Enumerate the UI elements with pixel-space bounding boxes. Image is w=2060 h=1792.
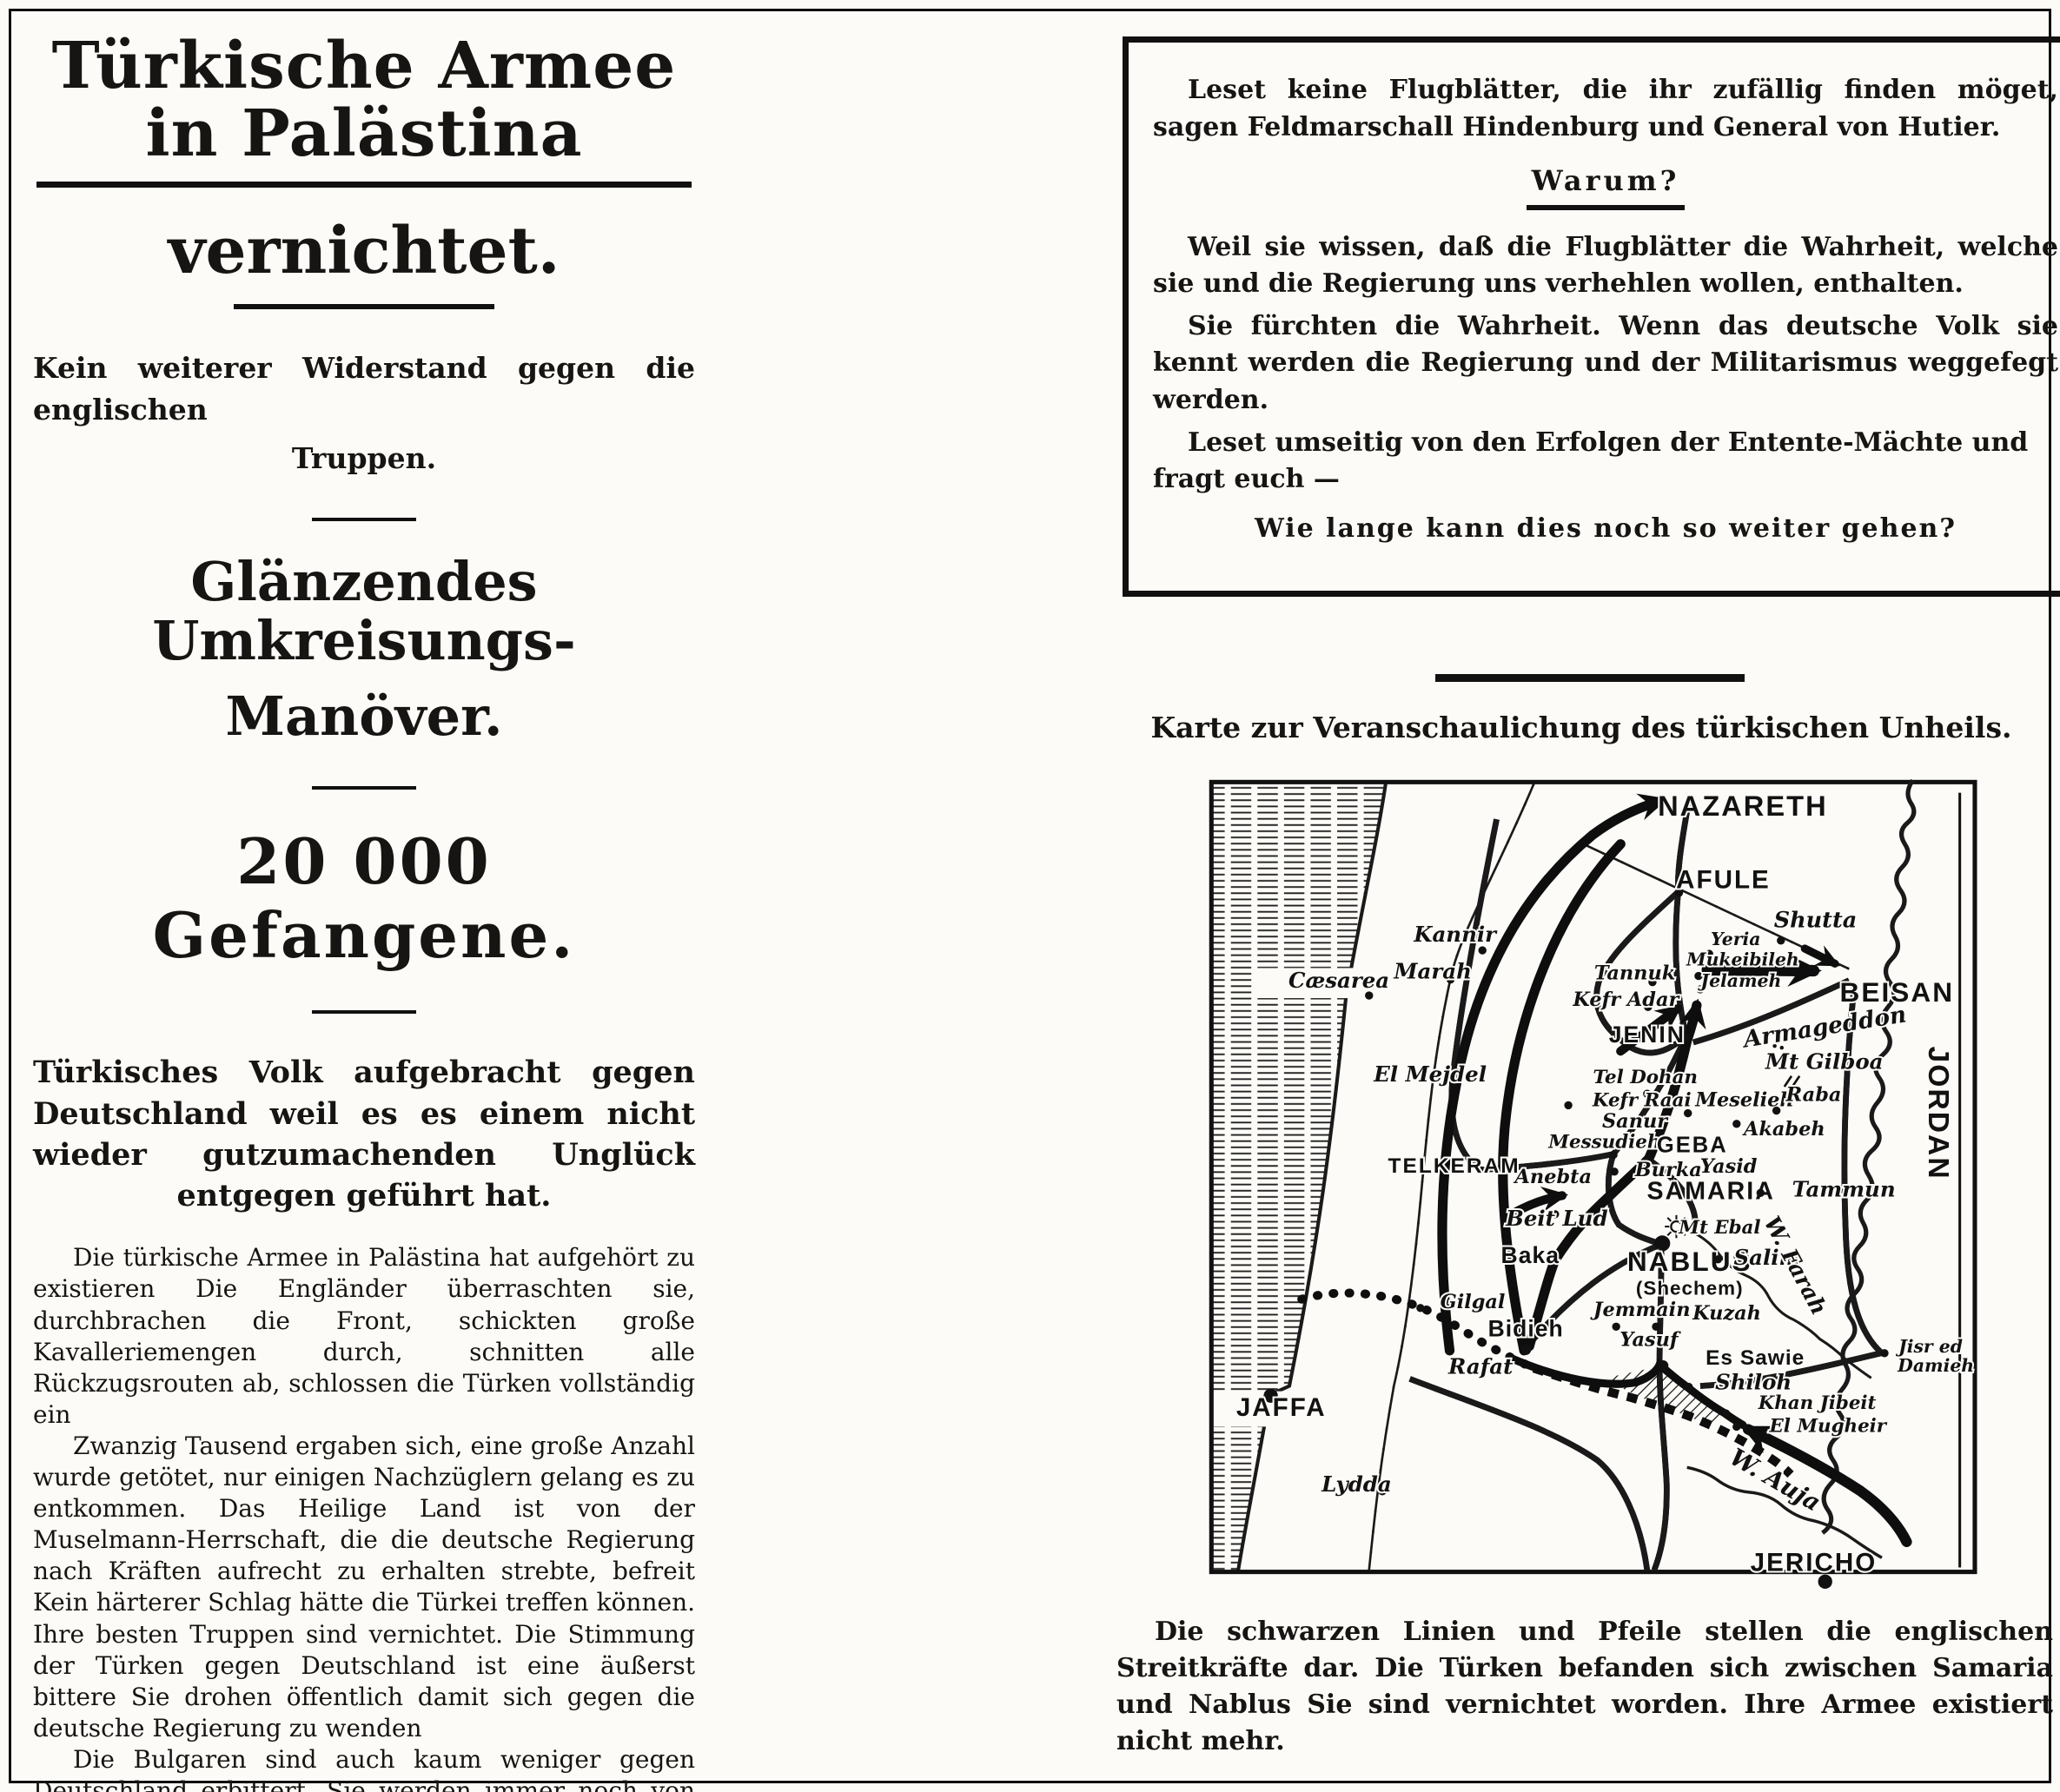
heading-encirclement-line2: Manöver.	[33, 684, 695, 748]
map-label-sanur: Sanur	[1602, 1110, 1669, 1133]
map-label-el-mejdel: El Mejdel	[1373, 1061, 1487, 1087]
section-divider	[312, 518, 416, 521]
headline-underline	[36, 182, 692, 188]
map-label-w-auja: W. Auja	[1725, 1443, 1825, 1517]
heading-encirclement-line1: Glänzendes Umkreisungs-	[33, 552, 695, 671]
map-label-beit-lud: Beit Lud	[1505, 1206, 1607, 1231]
map-label-kefr-adar: Kefr Adar	[1572, 989, 1680, 1011]
map-label-yeria: Yeria	[1711, 929, 1760, 949]
map-label-geba: GEBA	[1657, 1133, 1728, 1157]
notice-paragraph: Leset umseitig von den Erfolgen der Ente…	[1153, 425, 2058, 499]
body-paragraph: Die Bulgaren sind auch kaum weniger gege…	[33, 1744, 695, 1792]
town-dot	[1722, 1409, 1730, 1417]
map-caption-text: Die schwarzen Linien und Pfeile stellen …	[1116, 1614, 2053, 1760]
palestine-map: NAZARETHAFULEShuttaYeriaMukeibilehJelame…	[1203, 766, 2016, 1590]
map-label-jemmain: Jemmain	[1590, 1299, 1691, 1321]
notice-paragraph: Sie fürchten die Wahrheit. Wenn das deut…	[1153, 308, 2058, 420]
map-label-nazareth: NAZARETH	[1658, 790, 1828, 822]
map-label-bidieh: Bidieh	[1488, 1315, 1564, 1341]
map-label-baka: Baka	[1501, 1242, 1560, 1268]
town-dot	[1610, 1167, 1618, 1175]
town-dot	[1564, 1101, 1572, 1109]
map-label-raba: Raba	[1785, 1083, 1842, 1106]
map-title: Karte zur Veranschaulichung des türkisch…	[1121, 711, 2042, 744]
heading-prisoners: 20 000 Gefangene.	[33, 824, 695, 972]
map-label-tammun: Tammun	[1792, 1176, 1896, 1201]
section-divider	[312, 1010, 416, 1014]
town-dot	[1684, 1109, 1692, 1117]
map-label-mt-ebal: Mt Ebal	[1678, 1217, 1760, 1239]
warning-notice-box: Leset keine Flugblätter, die ihr zufälli…	[1123, 36, 2060, 597]
map-label-afule: AFULE	[1676, 866, 1771, 895]
main-headline-line1: Türkische Armee in Palästina	[33, 33, 695, 168]
subheadline-line2: Truppen.	[33, 438, 695, 479]
map-label-samaria: SAMARIA	[1647, 1177, 1775, 1205]
map-label-anebta: Anebta	[1514, 1166, 1592, 1188]
warum-heading: Warum?	[1527, 162, 1686, 209]
section-divider	[312, 786, 416, 790]
map-label-jenin: JENIN	[1609, 1022, 1686, 1048]
town-dot	[1658, 1360, 1668, 1371]
map-label-kefr-raai: Kefr Raai	[1592, 1089, 1692, 1111]
notice-paragraph: Weil sie wissen, daß die Flugblätter die…	[1153, 229, 2058, 303]
notice-paragraph: Leset keine Flugblätter, die ihr zufälli…	[1153, 72, 2058, 146]
map-label-tannuk: Tannuk	[1594, 962, 1675, 985]
map-label-c-sarea: Cæsarea	[1288, 968, 1389, 993]
map-label-telkeram: TELKERAM	[1388, 1154, 1520, 1178]
map-label-yasid: Yasid	[1700, 1155, 1758, 1178]
leaflet-page: Türkische Armee in Palästina vernichtet.…	[0, 0, 2060, 1792]
notice-final-question: Wie lange kann dies noch so weiter gehen…	[1153, 511, 2058, 548]
map-label-gilgal: Gilgal	[1441, 1291, 1506, 1313]
town-dot	[1772, 1107, 1780, 1114]
map-label-tel-dohan: Tel Dohan	[1593, 1067, 1698, 1088]
subheadline: Kein weiterer Widerstand gegen die engli…	[33, 347, 695, 479]
map-label-akabeh: Akabeh	[1742, 1118, 1825, 1141]
map-label-armageddon: Armageddon	[1739, 1001, 1909, 1054]
map-drawing: NAZARETHAFULEShuttaYeriaMukeibilehJelame…	[1203, 766, 2016, 1590]
body-paragraph: Zwanzig Tausend ergaben sich, eine große…	[33, 1431, 695, 1744]
article-body: Die türkische Armee in Palästina hat auf…	[33, 1242, 695, 1792]
town-dot	[1685, 1383, 1692, 1391]
left-column: Türkische Armee in Palästina vernichtet.…	[33, 33, 695, 1792]
map-label-damieh: Damieh	[1897, 1355, 1974, 1376]
map-label-jelameh: Jelameh	[1697, 970, 1781, 991]
town-dot	[1777, 936, 1785, 944]
body-paragraph: Die türkische Armee in Palästina hat auf…	[33, 1242, 695, 1431]
map-label-rafat: Rafat	[1447, 1353, 1514, 1379]
map-label-es-sawie: Es Sawie	[1706, 1346, 1805, 1370]
mediterranean-sea	[1211, 782, 1386, 1571]
main-headline-line2: vernichtet.	[33, 214, 695, 288]
town-dot	[1732, 1120, 1740, 1127]
town-dot	[1479, 946, 1487, 954]
bold-intro-paragraph: Türkisches Volk aufgebracht gegen Deutsc…	[33, 1052, 695, 1216]
town-dot	[1880, 1349, 1888, 1357]
subheadline-line1: Kein weiterer Widerstand gegen die engli…	[33, 347, 695, 431]
map-label-mt-gilboa: Mt Gilboa	[1765, 1049, 1884, 1075]
headline2-underline	[234, 304, 494, 309]
map-label-khan-jibeit: Khan Jibeit	[1758, 1392, 1877, 1414]
town-dot	[1714, 1255, 1722, 1263]
town-dot	[1732, 1423, 1740, 1431]
map-label-lydda: Lydda	[1321, 1471, 1392, 1497]
map-label-jericho: JERICHO	[1751, 1549, 1878, 1577]
map-caption: Die schwarzen Linien und Pfeile stellen …	[1116, 1614, 2053, 1760]
map-label-marah: Marah	[1393, 959, 1471, 984]
map-label-kannir: Kannir	[1413, 922, 1498, 947]
map-label-shiloh: Shiloh	[1715, 1370, 1792, 1395]
town-dot	[1416, 1304, 1424, 1312]
map-label--shechem-: (Shechem)	[1636, 1278, 1744, 1299]
map-label-mukeibileh: Mukeibileh	[1686, 949, 1799, 969]
map-label-jisr-ed: Jisr ed	[1895, 1336, 1963, 1357]
map-label-messudieh: Messudieh	[1547, 1131, 1660, 1153]
map-label-shutta: Shutta	[1774, 908, 1857, 934]
map-label-el-mugheir: El Mugheir	[1768, 1416, 1887, 1438]
map-label-kuzah: Kuzah	[1692, 1302, 1761, 1325]
town-dot	[1605, 1193, 1613, 1200]
map-label-jordan: JORDAN	[1922, 1046, 1954, 1180]
warum-heading-wrap: Warum?	[1153, 162, 2058, 209]
town-dot	[1757, 1189, 1765, 1197]
map-label-yasuf: Yasuf	[1620, 1329, 1681, 1352]
map-label-jaffa: JAFFA	[1236, 1393, 1327, 1422]
town-dot	[1520, 1345, 1531, 1355]
thick-divider-rule	[1435, 674, 1745, 682]
